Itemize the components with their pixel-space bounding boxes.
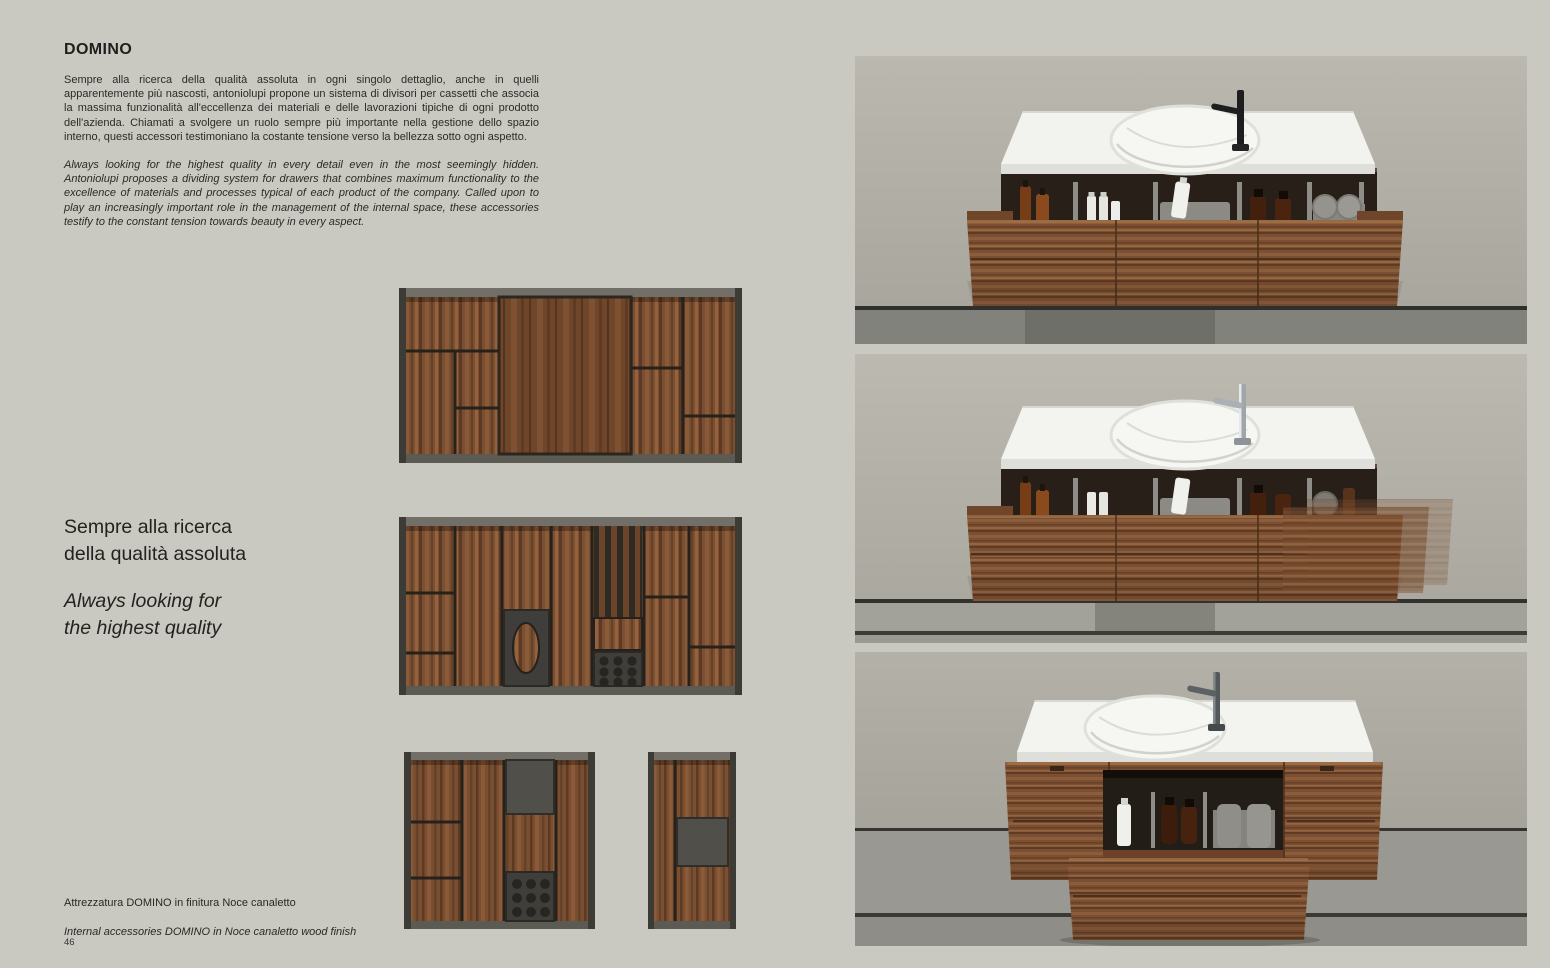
organizer-wide-top-image <box>399 288 742 463</box>
inner-drawer-opening <box>1103 770 1283 858</box>
wall-floor-junction <box>855 306 1527 310</box>
caption-italian: Attrezzatura DOMINO in finitura Noce can… <box>64 897 296 909</box>
organizer-bottle-holder <box>594 652 642 687</box>
pull-quote-english-line2: the highest quality <box>64 615 246 642</box>
washbasin <box>1111 106 1259 174</box>
pull-quote-italian-line2: della qualità assoluta <box>64 541 246 568</box>
organizer-tray-plate <box>677 818 728 866</box>
drawer-motion-ghost <box>1283 499 1453 593</box>
intro-paragraph-english: Always looking for the highest quality i… <box>64 158 539 229</box>
vanity-photo-3-illustration <box>855 652 1527 946</box>
organizer-slat-rack <box>594 526 642 650</box>
intro-paragraph-italian: Sempre alla ricerca della qualità assolu… <box>64 73 539 144</box>
organizer-oval-plate <box>504 610 549 686</box>
vanity-photo-open-drawer <box>855 56 1527 344</box>
page-title: DOMINO <box>64 41 132 59</box>
vanity-photo-drawer-closing <box>855 354 1527 643</box>
organizer-center-panel <box>499 297 631 454</box>
organizer-accessories-image <box>399 517 742 695</box>
catalog-spread: DOMINO Sempre alla ricerca della qualità… <box>0 0 1550 968</box>
washbasin <box>1085 696 1225 760</box>
floor-shadow <box>1095 603 1215 631</box>
floor-edge-line <box>855 631 1527 635</box>
vanity-photo-2-illustration <box>855 354 1527 643</box>
vanity-photo-inner-drawer <box>855 652 1527 946</box>
organizer-narrow-image <box>648 752 736 929</box>
page-number-left: 46 <box>64 937 75 948</box>
caption-english: Internal accessories DOMINO in Noce cana… <box>64 926 356 938</box>
organizer-square-illustration <box>404 752 595 929</box>
drawer-front <box>967 211 1403 306</box>
organizer-wide-top-illustration <box>399 288 742 463</box>
floor-shadow <box>1025 310 1215 344</box>
organizer-accessories-illustration <box>399 517 742 695</box>
organizer-narrow-illustration <box>648 752 736 929</box>
floor-lower <box>855 635 1527 643</box>
pull-quote-english-line1: Always looking for <box>64 588 246 615</box>
vanity-photo-1-illustration <box>855 56 1527 344</box>
pulled-out-drawer-front <box>1067 858 1310 940</box>
organizer-square-image <box>404 752 595 929</box>
washbasin <box>1111 401 1259 469</box>
pull-quote-italian-line1: Sempre alla ricerca <box>64 514 246 541</box>
pull-quote: Sempre alla ricerca della qualità assolu… <box>64 514 246 642</box>
organizer-bottle-holder <box>506 872 554 921</box>
organizer-wood-base <box>411 760 588 921</box>
organizer-tray-plate <box>506 760 554 814</box>
